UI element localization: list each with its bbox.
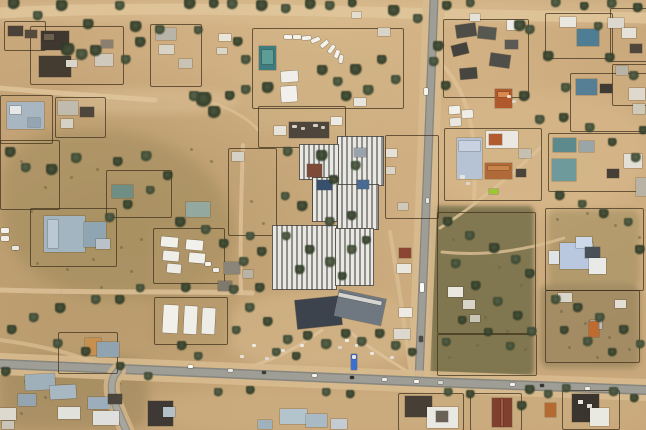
tree [624, 218, 633, 227]
tree [605, 53, 615, 63]
building [307, 164, 322, 177]
tree [599, 209, 609, 219]
building [579, 141, 594, 152]
tree [551, 295, 561, 305]
tree [56, 0, 68, 12]
ground-detail [460, 175, 465, 179]
tree [246, 386, 255, 395]
building [179, 59, 192, 68]
building [470, 14, 480, 21]
tree [408, 348, 417, 357]
vehicle [1, 236, 9, 241]
ground-detail [390, 356, 394, 359]
tree [155, 25, 165, 35]
ground-detail [370, 352, 374, 355]
ground-detail [240, 355, 244, 358]
building [0, 408, 16, 420]
vehicle [438, 381, 443, 384]
building [488, 166, 509, 170]
building [608, 18, 624, 28]
tree [493, 297, 503, 307]
building [629, 88, 645, 100]
building [501, 399, 503, 426]
tree [351, 161, 361, 171]
tree [7, 325, 17, 335]
tree [511, 255, 521, 265]
building [462, 110, 474, 119]
building [97, 342, 119, 357]
vehicle [205, 262, 211, 266]
tree [350, 64, 362, 76]
building [61, 119, 73, 128]
tree [241, 85, 251, 95]
building [331, 117, 342, 125]
tree [33, 11, 43, 21]
compound-wall [228, 148, 277, 236]
tree [433, 41, 444, 52]
building [262, 50, 273, 64]
tree [141, 151, 152, 162]
building [459, 141, 480, 151]
tree [255, 283, 265, 293]
ground-detail [355, 344, 358, 347]
tree [256, 0, 268, 12]
tree [325, 1, 335, 11]
building [585, 247, 600, 258]
ground-detail [466, 182, 470, 185]
tree [551, 0, 561, 8]
building [161, 236, 179, 247]
tree [519, 91, 530, 102]
tree [559, 113, 569, 123]
tree [135, 37, 146, 48]
tree [282, 232, 291, 241]
tree [175, 217, 186, 228]
tree [338, 272, 347, 281]
building [163, 407, 175, 417]
building [516, 169, 526, 177]
tree [116, 362, 125, 371]
compound-wall [385, 135, 439, 219]
tree [609, 387, 619, 397]
tree [177, 341, 187, 351]
tree [194, 352, 203, 361]
tree [232, 326, 241, 335]
building [399, 248, 411, 258]
tree [525, 269, 535, 279]
tree [333, 77, 343, 87]
building [477, 26, 496, 40]
tree [639, 126, 646, 135]
tree [316, 150, 328, 162]
building [560, 17, 576, 27]
building [578, 400, 583, 404]
building [397, 264, 411, 273]
tree [633, 3, 643, 13]
vehicle [510, 383, 515, 386]
building [281, 70, 299, 82]
tree [619, 325, 629, 335]
tree [631, 153, 641, 163]
tree [90, 45, 102, 57]
tree [55, 303, 66, 314]
tree [83, 19, 94, 30]
tree [219, 239, 229, 249]
vehicle [228, 369, 233, 372]
sand-trail [0, 290, 252, 293]
building [589, 321, 599, 337]
tree [391, 75, 401, 85]
building [354, 98, 366, 106]
tree [144, 372, 153, 381]
ground-detail [345, 339, 349, 342]
building [58, 101, 78, 115]
tree [325, 217, 335, 227]
tree [283, 147, 293, 157]
vehicle [352, 355, 356, 359]
vehicle [382, 378, 387, 381]
tree [1, 367, 11, 377]
tree [458, 316, 467, 325]
tree [281, 192, 290, 201]
tree [5, 147, 16, 158]
tree [388, 5, 400, 17]
tree [636, 340, 645, 349]
tree [29, 313, 39, 323]
tree [184, 0, 196, 10]
tree [555, 191, 565, 201]
ground-detail [313, 124, 318, 127]
tree [262, 82, 274, 94]
ground-detail [292, 125, 297, 128]
tree [123, 200, 133, 210]
tree [214, 388, 223, 397]
building [489, 189, 498, 194]
tree [466, 390, 475, 399]
tree [292, 352, 301, 361]
tree [115, 1, 125, 11]
vehicle [540, 384, 544, 387]
tree [544, 390, 553, 399]
tree [580, 2, 589, 11]
tree [341, 91, 352, 102]
tree [527, 327, 537, 337]
tree [517, 401, 527, 411]
tree [113, 157, 123, 167]
tree [246, 232, 255, 241]
tree [239, 257, 249, 267]
tree [297, 201, 308, 212]
tree [471, 281, 481, 291]
tree [357, 337, 367, 347]
building [386, 149, 397, 157]
building [28, 118, 40, 127]
building [470, 315, 480, 322]
tree [347, 245, 357, 255]
tree [272, 348, 281, 357]
tree [201, 225, 211, 235]
building [450, 118, 462, 127]
building [615, 300, 626, 308]
building [553, 138, 576, 152]
building [162, 305, 178, 334]
tree [189, 91, 200, 102]
tree [71, 153, 82, 164]
tree [194, 26, 203, 35]
tree [346, 390, 355, 399]
building [549, 251, 559, 264]
ground-detail [265, 357, 269, 360]
tree [348, 0, 357, 8]
building [607, 169, 619, 178]
tree [263, 317, 273, 327]
vehicle [350, 376, 354, 379]
ground-detail [321, 126, 325, 129]
tree [208, 106, 221, 119]
building [10, 106, 21, 114]
vehicle [213, 268, 219, 272]
tree [635, 245, 645, 255]
tree [562, 384, 571, 393]
tree [61, 43, 75, 57]
market-roof-block [337, 184, 379, 230]
building [576, 79, 597, 95]
building [243, 270, 253, 278]
tree [506, 342, 515, 351]
vehicle [585, 387, 590, 390]
tree [489, 243, 500, 254]
tree [121, 55, 131, 65]
building [101, 40, 113, 48]
tree [146, 186, 155, 195]
tree [241, 55, 251, 65]
tree [444, 388, 453, 397]
building [274, 126, 286, 135]
tree [347, 211, 357, 221]
tree [81, 347, 91, 357]
building [552, 159, 576, 181]
tree [283, 335, 293, 345]
tree [391, 341, 401, 351]
vehicle [12, 246, 19, 250]
building [280, 409, 307, 424]
tree [8, 0, 20, 10]
tree [608, 348, 617, 357]
tree [181, 283, 191, 293]
building [183, 306, 197, 335]
building [455, 23, 477, 39]
building [398, 203, 408, 210]
tree [91, 295, 101, 305]
building [280, 85, 297, 102]
building [449, 106, 461, 115]
tree [629, 71, 639, 81]
tree [225, 91, 235, 101]
tree [578, 200, 587, 209]
tree [21, 163, 31, 173]
building [545, 403, 556, 417]
tree [513, 311, 523, 321]
building [489, 53, 511, 69]
ground-detail [301, 127, 305, 130]
tree [163, 171, 173, 181]
building [577, 29, 599, 46]
building [505, 40, 518, 49]
tree [227, 0, 238, 10]
tree [321, 339, 332, 350]
building [219, 34, 231, 41]
building [2, 421, 14, 429]
satellite-image-canvas [0, 0, 646, 430]
tree [305, 0, 316, 10]
tree [561, 83, 571, 93]
vehicle [293, 35, 301, 39]
tree [442, 1, 452, 11]
ground-detail [252, 344, 256, 347]
building [354, 148, 366, 157]
vehicle [188, 365, 193, 368]
tree [329, 175, 339, 185]
tree [245, 303, 255, 313]
tree [607, 0, 617, 9]
building [112, 185, 133, 198]
ground-detail [300, 344, 304, 347]
tree [229, 285, 239, 295]
tree [136, 284, 145, 293]
tree [573, 303, 583, 313]
tree [46, 164, 58, 176]
building [201, 308, 215, 335]
building [306, 414, 327, 427]
building [590, 408, 609, 426]
tree [105, 213, 115, 223]
building [589, 258, 606, 274]
tree [209, 0, 219, 9]
tree [325, 257, 336, 268]
ground-detail [512, 100, 516, 103]
tree [130, 21, 142, 33]
building [167, 263, 182, 273]
tree [451, 259, 461, 269]
building [636, 178, 646, 196]
building [436, 411, 448, 422]
tree [441, 81, 451, 91]
tree [305, 245, 315, 255]
compound-wall [437, 334, 537, 376]
building [159, 45, 174, 54]
building [50, 384, 77, 399]
tree [317, 65, 328, 76]
building [633, 104, 645, 114]
building [8, 26, 23, 36]
building [600, 84, 612, 93]
building [18, 394, 36, 406]
building [463, 300, 475, 309]
vehicle [1, 228, 9, 233]
tree [375, 329, 385, 339]
building [489, 134, 502, 145]
building [519, 149, 531, 158]
building [331, 419, 347, 429]
building [93, 411, 119, 425]
building [163, 250, 180, 261]
building [80, 107, 94, 117]
building [630, 44, 642, 53]
building [25, 30, 37, 38]
tree [465, 231, 475, 241]
tree [429, 57, 439, 67]
vehicle [420, 283, 424, 292]
ground-detail [507, 95, 511, 98]
building [448, 287, 463, 297]
building [232, 152, 244, 161]
tree [257, 247, 267, 257]
building [224, 262, 240, 274]
building [44, 34, 54, 40]
tree [466, 0, 475, 8]
tree [442, 338, 451, 347]
building [394, 329, 410, 339]
tree [543, 51, 554, 62]
building [217, 48, 227, 54]
tree [233, 37, 243, 47]
tree [322, 388, 331, 397]
vehicle [414, 380, 419, 383]
tree [585, 123, 595, 133]
tree [363, 85, 374, 96]
tree [362, 236, 371, 245]
tree [595, 313, 605, 323]
tree [295, 265, 305, 275]
vehicle [419, 336, 423, 342]
vehicle [262, 371, 266, 374]
tree [443, 217, 453, 227]
tree [525, 25, 535, 35]
building [189, 252, 206, 263]
building [622, 28, 636, 38]
tree [53, 339, 63, 349]
vehicle [312, 374, 317, 377]
tree [303, 331, 313, 341]
vehicle [424, 88, 428, 95]
building [58, 407, 80, 419]
building [108, 394, 122, 404]
tree [377, 55, 387, 65]
building [378, 28, 390, 36]
building [96, 239, 110, 249]
tree [594, 22, 603, 31]
tree [525, 385, 535, 395]
building [460, 67, 478, 79]
tree [630, 394, 639, 403]
vehicle [426, 198, 429, 203]
building [616, 66, 628, 75]
tree [608, 138, 617, 147]
building [186, 239, 204, 250]
tree [560, 326, 569, 335]
tree [281, 4, 291, 14]
building [88, 397, 110, 409]
building [399, 308, 412, 317]
building [66, 60, 77, 67]
tree [76, 49, 88, 61]
building [48, 220, 58, 248]
tree [341, 329, 351, 339]
building [186, 202, 210, 217]
ground-detail [338, 346, 342, 349]
building [258, 420, 272, 429]
tree [115, 295, 125, 305]
